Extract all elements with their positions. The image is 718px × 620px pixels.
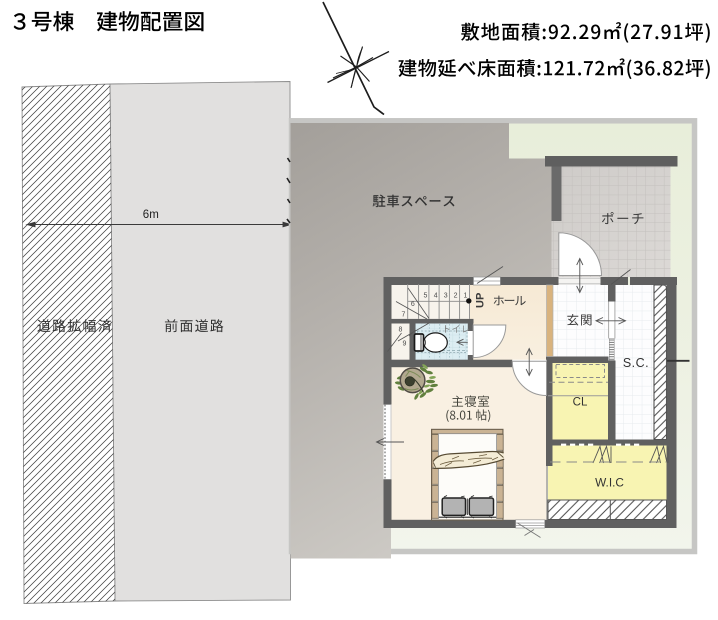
svg-text:2: 2 bbox=[454, 292, 458, 299]
svg-text:1: 1 bbox=[463, 292, 467, 299]
svg-text:4: 4 bbox=[434, 292, 438, 299]
svg-text:3: 3 bbox=[444, 292, 448, 299]
svg-text:S.C.: S.C. bbox=[623, 356, 649, 370]
svg-text:W.I.C: W.I.C bbox=[595, 475, 624, 489]
svg-text:UP: UP bbox=[475, 293, 487, 308]
svg-text:6: 6 bbox=[411, 301, 415, 308]
svg-text:9: 9 bbox=[403, 341, 407, 348]
svg-text:CL: CL bbox=[573, 397, 588, 409]
svg-text:5: 5 bbox=[424, 292, 428, 299]
svg-text:8: 8 bbox=[399, 327, 403, 334]
svg-text:6m: 6m bbox=[143, 209, 159, 221]
svg-text:7: 7 bbox=[402, 312, 406, 319]
